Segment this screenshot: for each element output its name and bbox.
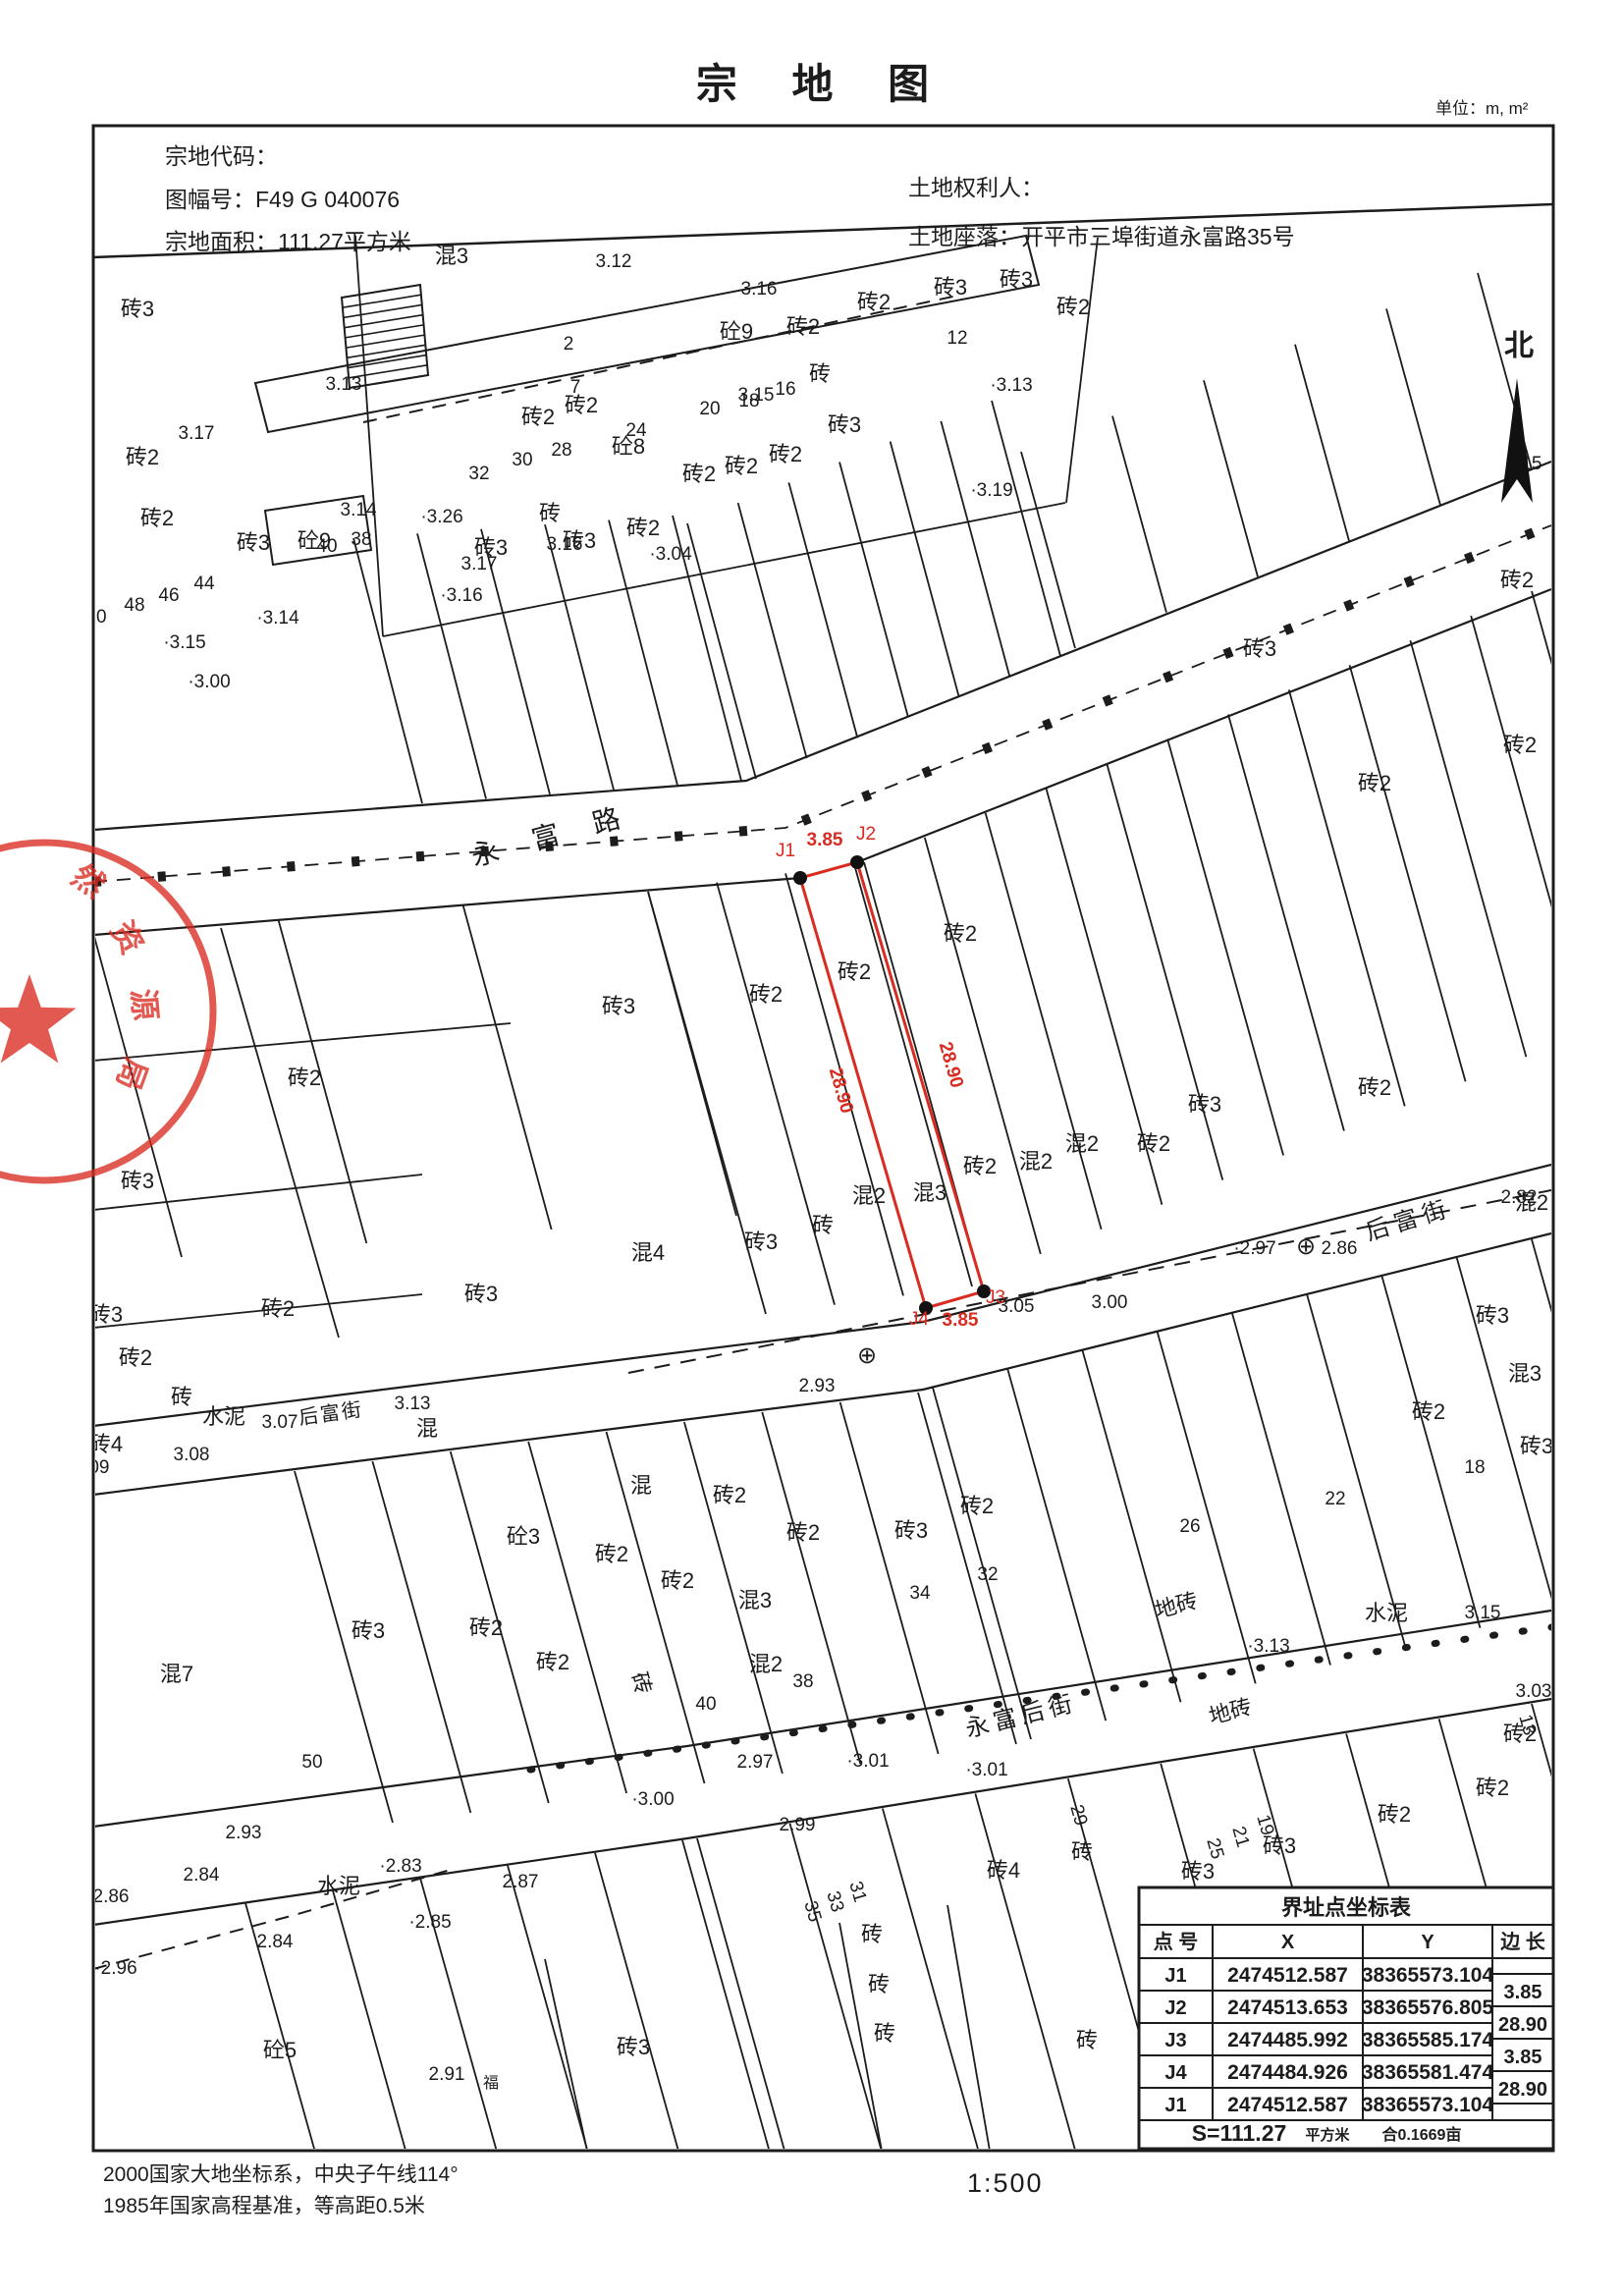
coord-y: 38365581.474 xyxy=(1362,2061,1494,2084)
coord-x: 2474513.653 xyxy=(1227,1996,1348,2019)
edge-length: 28.90 xyxy=(1498,2014,1547,2036)
coord-point-id: J1 xyxy=(1164,1965,1186,1987)
map-label: 29 xyxy=(1065,1802,1091,1828)
map-label: 砖2 xyxy=(469,1615,503,1640)
map-label: 混4 xyxy=(631,1240,665,1265)
map-label: ·3.13 xyxy=(990,375,1032,396)
map-label: 砖3 xyxy=(894,1518,928,1543)
map-label: 砖2 xyxy=(1412,1399,1445,1424)
map-label: 砖3 xyxy=(828,412,861,437)
map-label: 砖3 xyxy=(744,1230,778,1254)
map-label: 砖 xyxy=(868,1972,890,1996)
map-label: 砖2 xyxy=(725,454,758,478)
map-label: 38 xyxy=(351,529,371,550)
map-scale: 1:500 xyxy=(967,2168,1044,2199)
map-label: 砖 xyxy=(539,501,561,525)
map-label: 3.15 xyxy=(1465,1603,1501,1623)
map-label: 砖 xyxy=(812,1213,834,1237)
map-label: 20 xyxy=(699,399,720,419)
stamp-char: 资 xyxy=(104,915,150,960)
map-label: 3.08 xyxy=(174,1445,210,1465)
map-label: 砖2 xyxy=(786,1520,820,1545)
map-label: 2.91 xyxy=(429,2064,465,2085)
map-label: 2.93 xyxy=(226,1823,262,1843)
star-icon xyxy=(0,974,77,1064)
map-label: 32 xyxy=(977,1564,998,1585)
map-label: 3.12 xyxy=(596,251,632,272)
coord-y: 38365573.104 xyxy=(1362,1964,1494,1987)
map-label: 砼9 xyxy=(720,319,753,344)
map-label: 砖2 xyxy=(1503,1722,1537,1746)
header-divider xyxy=(93,204,1553,257)
map-label: 34 xyxy=(909,1583,931,1604)
map-label: ·2.96 xyxy=(94,1958,136,1979)
map-label: 24 xyxy=(625,420,647,441)
map-label: 2.82 xyxy=(1501,1187,1538,1208)
map-label: 砖2 xyxy=(521,405,555,429)
map-label: ·3.01 xyxy=(846,1751,889,1772)
map-label: 混3 xyxy=(738,1588,772,1613)
map-label: ⊕ xyxy=(1296,1233,1316,1260)
map-label: 3.17 xyxy=(179,423,215,444)
survey-marks xyxy=(93,525,1551,882)
map-label: 砖3 xyxy=(352,1618,385,1643)
map-label: 2.93 xyxy=(799,1376,836,1396)
map-label: 3.13 xyxy=(395,1394,431,1414)
map-label: ·3.15 xyxy=(163,632,205,653)
coord-x: 2474484.926 xyxy=(1227,2061,1348,2084)
map-label: 砖3 xyxy=(1263,1833,1296,1858)
map-label: 砖2 xyxy=(595,1542,628,1566)
street-name: 后富街 xyxy=(298,1398,365,1430)
map-label: 砖2 xyxy=(661,1568,694,1593)
map-label: 水泥 xyxy=(202,1404,245,1429)
map-label: 砖2 xyxy=(565,393,598,417)
map-label: 2.87 xyxy=(503,1872,539,1892)
map-label: ·3.00 xyxy=(188,672,230,692)
map-label: ·3.04 xyxy=(649,544,692,565)
map-label: 砖2 xyxy=(713,1483,746,1507)
map-label: 地砖 xyxy=(1207,1694,1255,1729)
map-label: 18 xyxy=(738,391,759,411)
map-label: 砖2 xyxy=(769,442,802,466)
map-label: 22 xyxy=(1325,1489,1345,1509)
map-canvas: J13.85J2J43.85J328.9028.90永 富 路后富街后富街永富后… xyxy=(0,0,1623,2296)
edge-length: 28.90 xyxy=(1498,2079,1547,2101)
map-label: 砖2 xyxy=(261,1296,295,1321)
table-title: 界址点坐标表 xyxy=(1281,1895,1412,1920)
coord-y: 38365576.805 xyxy=(1362,1996,1494,2019)
table-col-header: Y xyxy=(1421,1932,1434,1953)
map-label: 18 xyxy=(1464,1457,1485,1478)
boundary-point-J1 xyxy=(793,871,807,885)
map-label: 砖2 xyxy=(626,516,660,540)
north-arrow-icon xyxy=(1501,378,1533,503)
map-label: 混3 xyxy=(913,1180,947,1205)
map-label: 混2 xyxy=(852,1183,886,1208)
parcel-dim-label: 3.85 xyxy=(807,830,843,850)
coord-y: 38365573.104 xyxy=(1362,2094,1494,2116)
map-label: 35 xyxy=(799,1898,825,1924)
coordinate-table: 界址点坐标表点 号XY边 长J12474512.58738365573.104J… xyxy=(1139,1887,1553,2149)
map-label: 33 xyxy=(822,1888,847,1914)
map-label: 48 xyxy=(124,595,144,616)
map-label: 28 xyxy=(551,440,571,461)
map-label: ·3.01 xyxy=(965,1760,1007,1780)
red-seal-stamp: 然资源局 xyxy=(0,843,213,1180)
map-label: 砖2 xyxy=(1056,295,1090,319)
map-label: 砖2 xyxy=(1358,771,1391,795)
map-label: 砖3 xyxy=(617,2035,650,2059)
table-col-header: X xyxy=(1281,1932,1295,1953)
map-label: 砖2 xyxy=(786,314,820,339)
stamp-char: 局 xyxy=(110,1054,154,1095)
map-label: 混3 xyxy=(1508,1361,1542,1386)
map-label: 2.84 xyxy=(257,1932,294,1952)
map-label: 混 xyxy=(416,1416,438,1441)
map-label: 福 xyxy=(483,2074,499,2092)
map-label: 砖2 xyxy=(960,1494,994,1518)
map-label: 2.86 xyxy=(1322,1238,1358,1259)
map-label: 30 xyxy=(512,450,532,470)
map-label: 12 xyxy=(947,328,967,349)
map-label: 水泥 xyxy=(1365,1601,1408,1625)
map-label: 38 xyxy=(792,1671,813,1692)
map-label: 3.00 xyxy=(1092,1292,1128,1313)
coord-x: 2474512.587 xyxy=(1227,2094,1348,2116)
map-label: 砖2 xyxy=(857,290,891,314)
area-summary-s: S=111.27 xyxy=(1192,2120,1287,2146)
map-label: 混 xyxy=(630,1473,652,1498)
edge-length: 3.85 xyxy=(1504,1982,1542,2003)
map-label: 砖 xyxy=(1076,2028,1098,2052)
stamp-char: 源 xyxy=(126,988,164,1022)
street-name: 永富后街 xyxy=(963,1690,1080,1743)
map-label: 3.03 xyxy=(1516,1681,1552,1702)
map-label: 32 xyxy=(468,464,489,484)
cadastral-map-sheet: 宗 地 图 单位：m, m² 宗地代码： 图幅号：F49 G 040076 宗地… xyxy=(0,0,1623,2296)
road-centerline xyxy=(93,525,1551,882)
table-col-header: 点 号 xyxy=(1154,1931,1199,1953)
map-label: 地砖 xyxy=(1153,1588,1201,1623)
map-label: 2.86 xyxy=(93,1886,130,1907)
map-label: 3.16 xyxy=(547,534,583,555)
map-label: 46 xyxy=(158,585,179,606)
map-label: 混3 xyxy=(435,244,468,268)
map-label: 50 xyxy=(85,607,106,628)
coord-x: 2474512.587 xyxy=(1227,1964,1348,1987)
map-label: ·2.85 xyxy=(408,1912,451,1933)
map-label: 砖3 xyxy=(1520,1434,1553,1458)
map-label: 3.05 xyxy=(999,1296,1035,1317)
map-label: 2.99 xyxy=(780,1815,816,1835)
coord-y: 38365585.174 xyxy=(1362,2029,1494,2051)
map-label: 砖3 xyxy=(237,530,270,555)
map-label: 混2 xyxy=(749,1652,783,1676)
map-label: 砖3 xyxy=(934,275,967,300)
map-label: 砖3 xyxy=(1188,1092,1221,1117)
map-label: 砖2 xyxy=(682,462,716,486)
map-label: 16 xyxy=(775,379,795,400)
table-col-header: 边 长 xyxy=(1499,1931,1546,1953)
map-label: 砖3 xyxy=(121,1169,154,1193)
map-label: 40 xyxy=(316,536,337,557)
parcel-dim-label: 3.85 xyxy=(943,1310,979,1331)
area-summary-unit: 平方米 xyxy=(1305,2126,1350,2144)
map-label: 砖 xyxy=(874,2021,895,2046)
map-label: 50 xyxy=(301,1752,322,1773)
map-label: 砼3 xyxy=(507,1524,540,1549)
parcel-dim-label: J4 xyxy=(909,1309,930,1330)
map-label: 砖2 xyxy=(838,959,871,984)
map-label: 砖2 xyxy=(536,1650,569,1674)
coord-point-id: J2 xyxy=(1164,1997,1186,2019)
map-label: 2.84 xyxy=(184,1865,220,1886)
map-label: ·3.13 xyxy=(1247,1636,1289,1657)
map-label: 砖3 xyxy=(1243,636,1276,661)
map-label: 砖2 xyxy=(963,1154,997,1178)
map-label: 砖2 xyxy=(749,982,783,1007)
map-label: 砖3 xyxy=(121,297,154,321)
north-label: 北 xyxy=(1504,330,1534,362)
map-label: 2.97 xyxy=(737,1752,774,1773)
map-label: 混7 xyxy=(160,1662,193,1686)
map-label: 砖2 xyxy=(119,1345,152,1370)
map-label: 3.13 xyxy=(326,374,362,395)
map-label: 31 xyxy=(844,1879,870,1904)
map-label: 砖2 xyxy=(126,445,159,469)
map-label: 砖3 xyxy=(1000,267,1033,292)
parcel-dim-label: J1 xyxy=(776,841,795,861)
map-label: 3.14 xyxy=(341,500,377,520)
coord-point-id: J3 xyxy=(1164,2030,1186,2051)
sheet-frame xyxy=(93,126,1553,2151)
map-label: 44 xyxy=(193,574,215,594)
map-label: 砖3 xyxy=(464,1282,498,1306)
map-label: 砖3 xyxy=(602,994,635,1018)
map-label: 砖2 xyxy=(288,1066,321,1090)
map-label: 25 xyxy=(1202,1835,1227,1861)
map-label: 砖 xyxy=(809,361,831,386)
street-name: 永 富 路 xyxy=(468,799,637,872)
map-label: 3.09 xyxy=(74,1457,110,1478)
map-label: 3.07 xyxy=(262,1412,298,1433)
edge-length: 3.85 xyxy=(1504,2047,1542,2068)
parcel-dim-label: J2 xyxy=(856,824,876,845)
map-label: 砖2 xyxy=(1500,568,1534,592)
map-label: 混2 xyxy=(1019,1149,1053,1174)
map-label: 砖2 xyxy=(944,921,977,946)
street-name: 后富街 xyxy=(1363,1195,1455,1246)
map-label: 砖2 xyxy=(140,506,174,530)
map-label: ·3.00 xyxy=(631,1789,674,1810)
map-label: 26 xyxy=(1179,1516,1200,1537)
map-label: 水泥 xyxy=(317,1874,360,1898)
boundary-point-J2 xyxy=(850,855,864,869)
stamp-char: 然 xyxy=(66,857,112,904)
map-label: ·3.14 xyxy=(256,608,299,629)
parcel-dim-label: 28.90 xyxy=(825,1066,857,1116)
map-label: 砖 xyxy=(626,1669,656,1697)
map-label: ·2.83 xyxy=(379,1856,421,1877)
map-label: ·2.97 xyxy=(1233,1238,1275,1259)
map-label: 砖 xyxy=(171,1385,192,1409)
map-label: 砖2 xyxy=(1378,1802,1411,1827)
coord-point-id: J1 xyxy=(1164,2095,1186,2116)
map-label: 40 xyxy=(695,1694,716,1715)
coord-x: 2474485.992 xyxy=(1227,2029,1348,2051)
map-label: 砖3 xyxy=(1181,1859,1215,1884)
area-summary-mu: 合0.1669亩 xyxy=(1382,2125,1462,2144)
map-label: 砖 xyxy=(1071,1839,1093,1864)
coord-point-id: J4 xyxy=(1164,2062,1187,2084)
map-label: 砖2 xyxy=(1503,733,1537,757)
footer-datum-line1: 2000国家大地坐标系，中央子午线114° xyxy=(103,2159,459,2188)
map-label: ·3.26 xyxy=(420,507,462,527)
map-label: 砖4 xyxy=(987,1858,1020,1883)
map-label: 3.16 xyxy=(741,279,778,300)
map-label: 21 xyxy=(1227,1824,1253,1849)
map-label: 3.17 xyxy=(461,554,498,574)
map-label: 砖3 xyxy=(1476,1303,1509,1328)
footer-datum-line2: 1985年国家高程基准，等高距0.5米 xyxy=(103,2190,425,2219)
map-label: ⊕ xyxy=(857,1342,877,1369)
parcel-dim-label: 28.90 xyxy=(935,1040,967,1090)
map-label: 砼5 xyxy=(263,2038,297,2062)
map-label: 砖2 xyxy=(1137,1131,1170,1156)
map-label: ·3.16 xyxy=(440,585,482,606)
map-label: 砖 xyxy=(861,1922,883,1946)
map-label: 砖2 xyxy=(1358,1075,1391,1100)
map-label: 混2 xyxy=(1065,1131,1099,1156)
map-label: 砖2 xyxy=(1476,1776,1509,1800)
map-label: ·3.19 xyxy=(970,480,1012,501)
map-label: 2 xyxy=(564,334,574,355)
